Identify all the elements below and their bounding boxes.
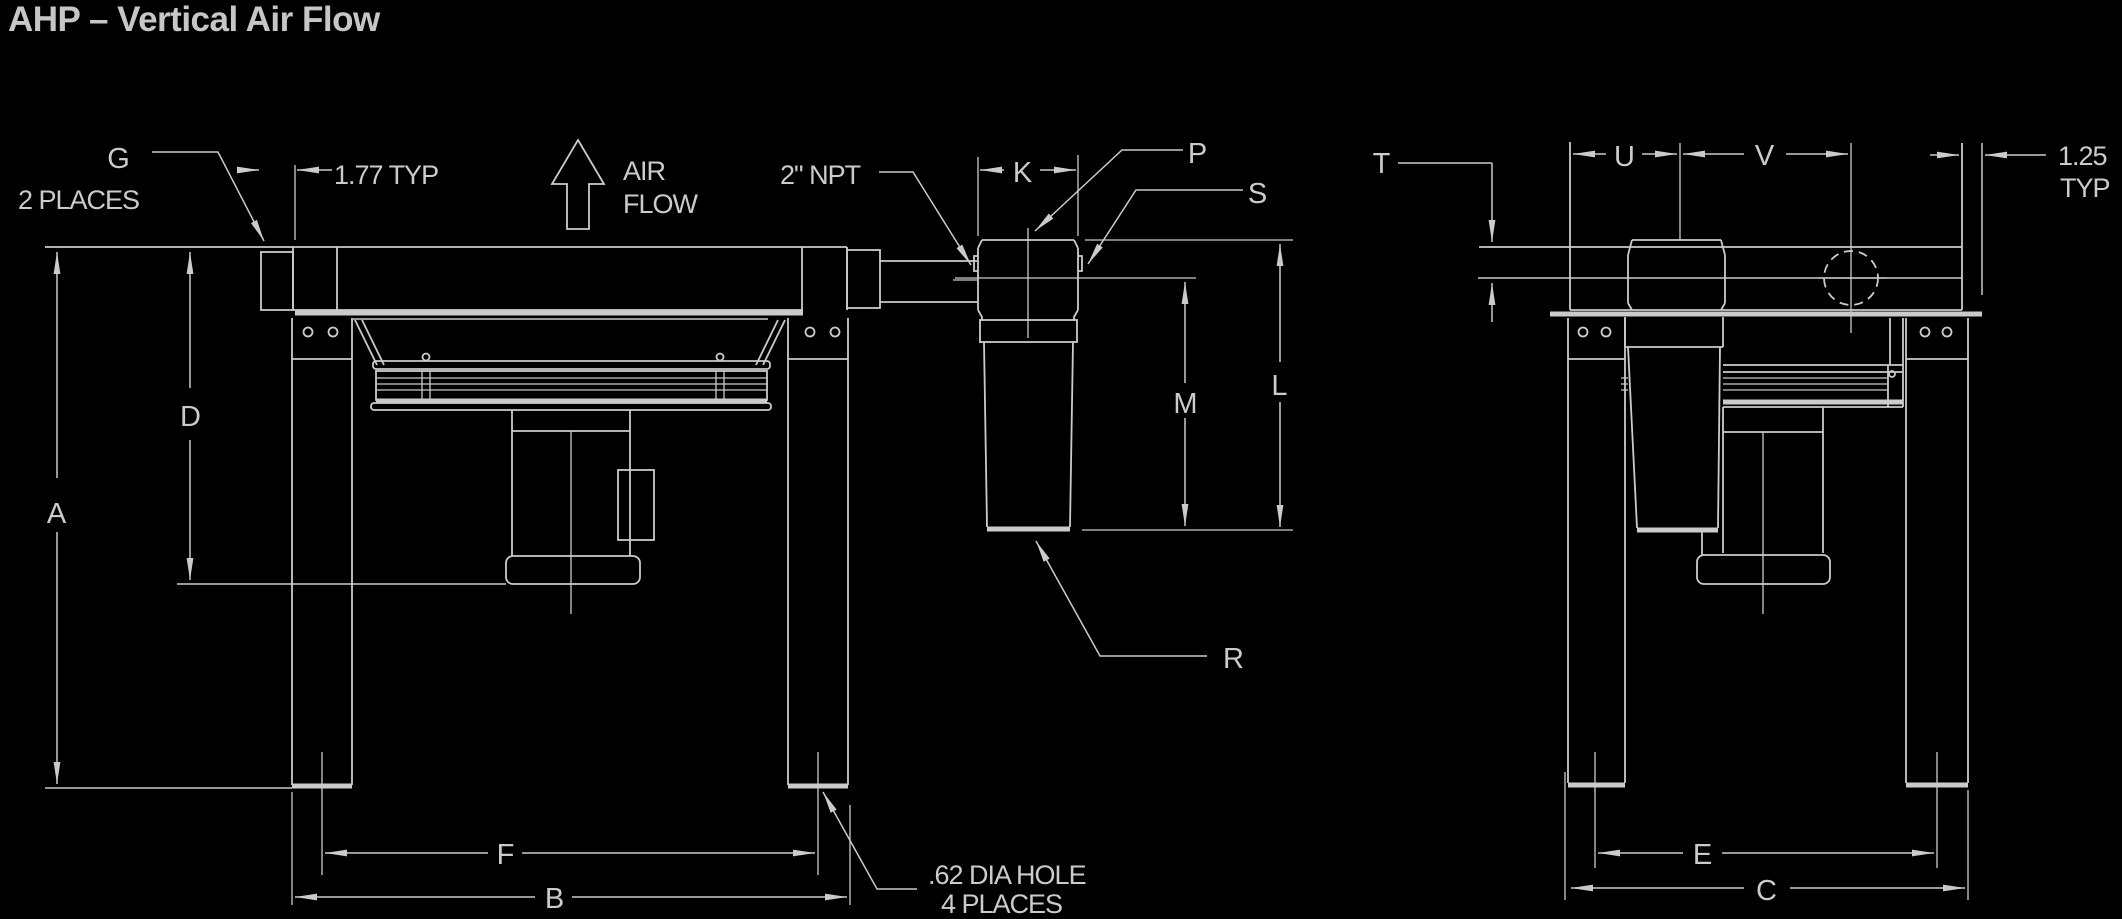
supply-pipe	[880, 261, 977, 302]
hole-note-leader	[823, 792, 917, 889]
r-leader	[1036, 541, 1207, 656]
dim-label-d: D	[180, 401, 200, 433]
front-view: G 2 PLACES 1.77 TYP AIR FLOW 2" NPT K P …	[18, 138, 1293, 919]
hanger-braces	[355, 320, 785, 365]
leg-bolt-hole	[1602, 328, 1611, 337]
note-2-places: 2 PLACES	[18, 185, 139, 215]
end-filter-bowl	[1625, 317, 1723, 555]
dim-label-c: C	[1756, 875, 1776, 907]
dim-label-f: F	[497, 839, 514, 871]
leg-bolt-hole	[304, 328, 313, 337]
leg-bolt-hole	[1921, 328, 1930, 337]
end-view: T U V 1.25 TYP E C	[1373, 140, 2110, 907]
air-flow-label-line1: AIR	[623, 156, 666, 186]
dim-label-l: L	[1271, 370, 1287, 402]
capacitor-box	[618, 470, 654, 540]
dim-label-a: A	[47, 498, 67, 530]
pipe-port-hole	[1818, 143, 1886, 333]
note-1-25-typ-line1: 1.25	[2058, 141, 2107, 171]
g-leader	[152, 152, 264, 241]
end-dimensions	[1398, 154, 2046, 900]
dim-label-u: U	[1614, 141, 1634, 173]
plenum-louver-assembly	[371, 354, 771, 411]
right-outlet-stub	[847, 250, 880, 308]
air-flow-label-line2: FLOW	[623, 189, 699, 219]
dim-label-b: B	[545, 883, 563, 915]
dim-label-t: T	[1373, 148, 1391, 180]
filter-bowl	[984, 342, 1073, 527]
dim-label-m: M	[1173, 388, 1196, 420]
end-filter-inlet-block	[1628, 143, 1725, 310]
foot-hole-centerlines	[1595, 752, 1937, 868]
dim-label-k: K	[1013, 157, 1033, 189]
leg-bolt-hole	[806, 328, 815, 337]
front-dimensions	[57, 150, 1293, 905]
end-blower-motor	[1697, 407, 1830, 614]
table-top	[45, 247, 880, 319]
plenum-bolt	[717, 354, 724, 361]
dim-label-g: G	[107, 143, 129, 175]
technical-drawing-canvas: AHP – Vertical Air Flow	[0, 0, 2122, 919]
dim-label-s: S	[1248, 178, 1267, 210]
note-hole-dia-line1: .62 DIA HOLE	[928, 860, 1086, 890]
leg-bolt-hole	[831, 328, 840, 337]
note-hole-dia-line2: 4 PLACES	[941, 889, 1062, 919]
motor-base	[506, 556, 640, 584]
foot-hole-centerlines	[322, 752, 818, 875]
npt-leader	[879, 172, 971, 265]
note-2in-npt: 2" NPT	[780, 160, 861, 190]
end-plenum-louvers	[1621, 318, 1903, 407]
dim-label-r: R	[1223, 643, 1243, 675]
s-leader	[1088, 190, 1243, 264]
air-flow-up-arrow-icon	[552, 140, 604, 229]
page-title: AHP – Vertical Air Flow	[8, 0, 381, 39]
leg-bolt-hole	[1943, 328, 1952, 337]
leg-bolt-hole	[1579, 328, 1588, 337]
drawing-page: AHP – Vertical Air Flow	[0, 0, 2122, 919]
blower-motor	[177, 410, 654, 614]
plenum-bolt	[1889, 371, 1895, 377]
end-table-top	[1478, 142, 1982, 314]
note-1-77-typ: 1.77 TYP	[334, 160, 438, 190]
note-1-25-typ-line2: TYP	[2060, 173, 2110, 203]
filter-regulator-unit	[955, 228, 1196, 529]
left-end-cap-block	[261, 252, 293, 310]
dim-label-e: E	[1693, 839, 1712, 871]
dim-label-v: V	[1755, 140, 1775, 172]
plenum-bolt	[423, 354, 430, 361]
dim-label-p: P	[1188, 138, 1206, 170]
leg-bolt-hole	[329, 328, 338, 337]
